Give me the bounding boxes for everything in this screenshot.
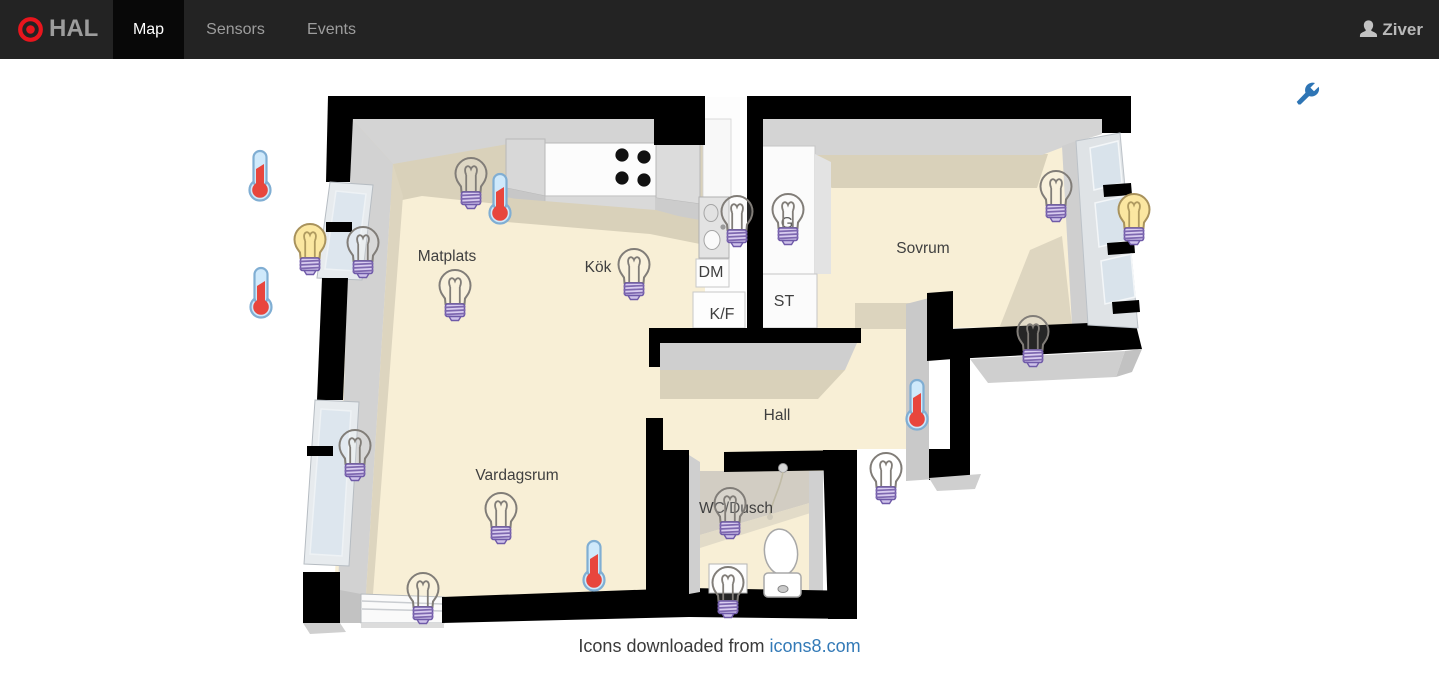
svg-text:Sovrum: Sovrum — [896, 240, 949, 257]
svg-text:Vardagsrum: Vardagsrum — [475, 467, 558, 484]
svg-text:DM: DM — [699, 264, 724, 281]
svg-text:Kök: Kök — [585, 259, 612, 276]
svg-text:Matplats: Matplats — [418, 248, 477, 265]
svg-text:ST: ST — [774, 293, 795, 310]
svg-text:K/F: K/F — [710, 306, 735, 323]
svg-text:Hall: Hall — [764, 407, 791, 424]
